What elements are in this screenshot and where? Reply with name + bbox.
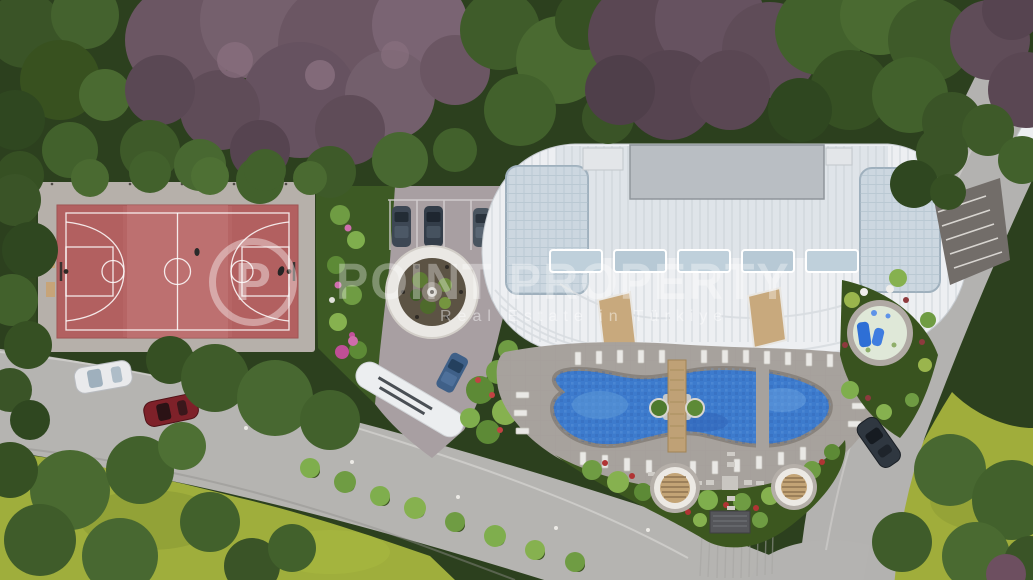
entrance-gate: [710, 511, 750, 533]
render-canvas: [0, 0, 1033, 580]
parked-suv-2: [424, 206, 443, 247]
bench: [46, 282, 55, 297]
round-pergola-right: [771, 464, 817, 510]
pool-planter: [686, 399, 704, 417]
player-figure: [194, 248, 199, 256]
fountain-plaza: [386, 246, 478, 338]
parked-cars: [392, 206, 491, 247]
basketball-court: [57, 205, 298, 338]
rooftop-unit: [583, 148, 623, 170]
rooftop-unit: [826, 148, 852, 165]
aerial-render-image: P POINT PROPERTY Real Estate in Türkiye: [0, 0, 1033, 580]
pool-planter: [650, 399, 668, 417]
round-pergola-left: [650, 463, 700, 513]
pool-divider-walk: [756, 366, 769, 450]
rooftop-panel: [630, 145, 824, 199]
wood-terrace: [748, 288, 786, 348]
parked-suv-1: [392, 206, 411, 247]
balconies: [550, 250, 858, 272]
